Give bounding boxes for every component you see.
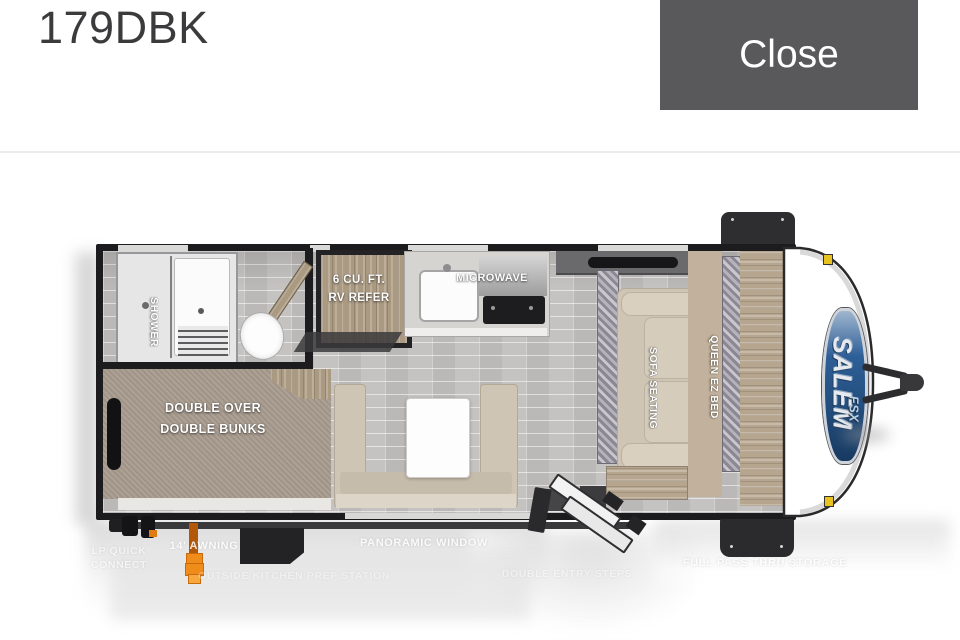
clearance-light-icon xyxy=(824,496,834,507)
bunk-floor-strip xyxy=(118,498,331,510)
microwave-label: MICROWAVE xyxy=(456,272,528,284)
floorplan-image: SHOWER DOUBLE OVER DOUBLE BUNKS 6 CU. FT… xyxy=(0,160,960,640)
outside-kitchen-door xyxy=(240,528,304,564)
shower-label: SHOWER xyxy=(148,297,160,347)
window-panoramic-wall xyxy=(345,513,540,519)
rivet-icon xyxy=(780,545,783,548)
refer-label-line2: RV REFER xyxy=(328,292,389,304)
hitch-coupler xyxy=(900,374,924,391)
shower-glass-line xyxy=(170,256,172,358)
awning-label: 14' AWNING xyxy=(170,540,239,552)
panoramic-window-label: PANORAMIC WINDOW xyxy=(360,537,488,549)
floorplan-modal: 179DBK Close SHOWER xyxy=(0,0,960,640)
kitchen-counter xyxy=(404,251,550,337)
window-top-rear xyxy=(118,245,188,252)
bunks-label-line2: DOUBLE BUNKS xyxy=(160,422,266,436)
hitch-shadow xyxy=(842,428,890,442)
shower-drain xyxy=(198,308,204,314)
refrigerator-shadow xyxy=(294,332,402,352)
badge-sub: FSX xyxy=(847,396,862,422)
faucet-icon xyxy=(443,264,451,272)
pass-thru-storage-door xyxy=(720,519,794,557)
shower-stall xyxy=(116,252,238,364)
sofa-ottoman xyxy=(606,466,688,500)
shadow-left xyxy=(74,252,98,524)
dinette-table xyxy=(406,398,470,478)
clearance-light-icon xyxy=(823,254,833,265)
shower-mat xyxy=(178,326,228,356)
stove-knob-icon xyxy=(491,306,495,310)
divider xyxy=(0,151,960,153)
shadow-wash xyxy=(110,550,530,620)
sofa-runner-rug xyxy=(597,270,619,464)
roof-vent-icon xyxy=(588,257,678,268)
dinette-base xyxy=(336,494,516,508)
stove-knob-icon xyxy=(529,306,533,310)
page-title: 179DBK xyxy=(38,2,209,54)
bumper-foot xyxy=(122,516,138,536)
lp-label-line1: LP QUICK xyxy=(92,545,147,557)
sofa-label: SOFA SEATING xyxy=(647,347,659,429)
stove-icon xyxy=(483,296,545,324)
refer-label-line1: 6 CU. FT. xyxy=(333,274,385,286)
bathroom-wall-bottom xyxy=(103,362,313,369)
pass-thru-label: FULL PASS THRU STORAGE xyxy=(683,557,847,569)
rivet-icon xyxy=(730,545,733,548)
close-button[interactable]: Close xyxy=(660,0,918,110)
shadow-bottom-right xyxy=(655,520,950,580)
rivet-icon xyxy=(731,218,734,221)
marker-light-icon xyxy=(149,530,157,537)
bunk-window xyxy=(107,398,121,470)
bunks-label-line1: DOUBLE OVER xyxy=(165,401,261,415)
queen-label: QUEEN EZ BED xyxy=(708,335,720,419)
outside-kitchen-label: OUTSIDE KITCHEN PREP STATION xyxy=(198,570,390,582)
rivet-icon xyxy=(781,218,784,221)
counter-front xyxy=(405,328,547,336)
lp-label-line2: CONNECT xyxy=(91,559,147,571)
queen-bed-runner xyxy=(722,256,742,472)
entry-steps-label: DOUBLE ENTRY STEPS xyxy=(502,568,632,580)
